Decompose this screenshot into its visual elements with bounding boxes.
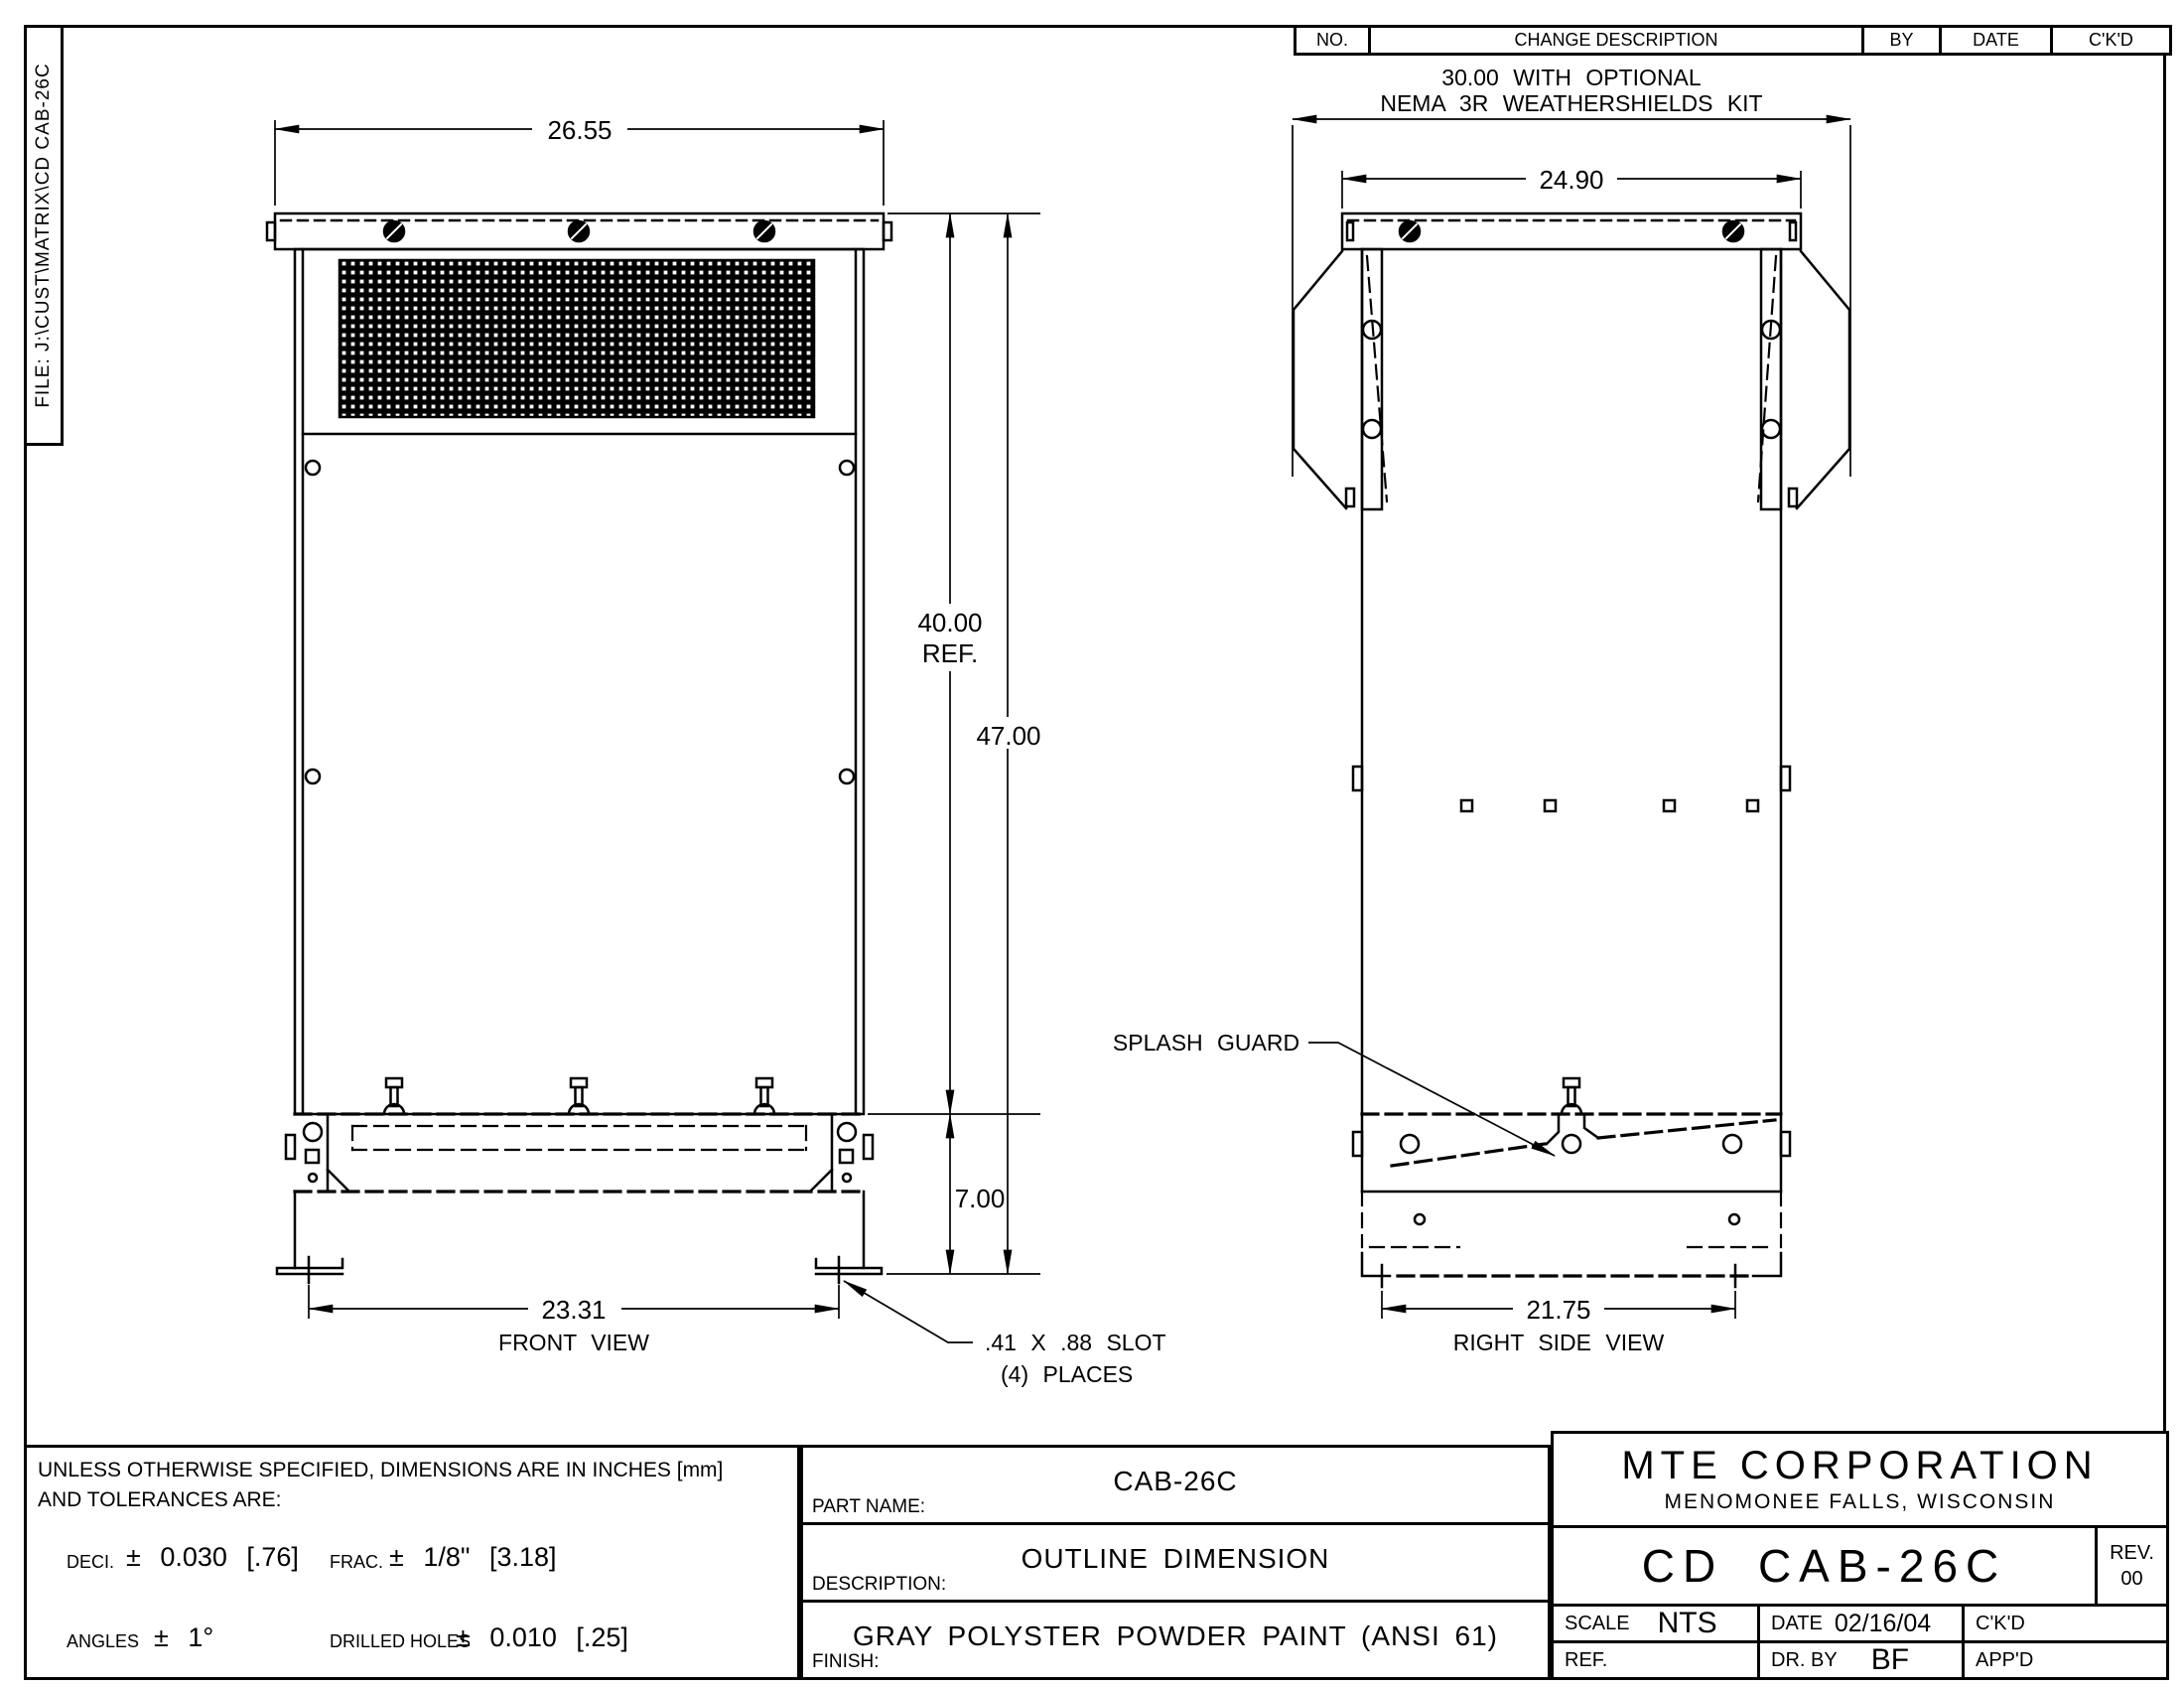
- slot-note-line1: .41 X .88 SLOT: [985, 1330, 1166, 1355]
- drawing-sheet: FILE: J:\CUST\MATRIX\CD CAB-26C NO. CHAN…: [0, 0, 2184, 1688]
- finish-value: GRAY POLYSTER POWDER PAINT (ANSI 61): [803, 1620, 1548, 1652]
- date-cell: DATE 02/16/04: [1757, 1607, 1962, 1640]
- drawing-number-row: CD CAB-26C REV. 00: [1554, 1525, 2166, 1604]
- right-side-view: [1294, 213, 1849, 1287]
- dim-side-top-width: 24.90: [1539, 165, 1603, 195]
- dim-side-base-width: 21.75: [1526, 1295, 1590, 1325]
- tolerance-note-line2: AND TOLERANCES ARE:: [38, 1485, 723, 1515]
- deci-value: ± 0.030 [.76]: [126, 1542, 299, 1573]
- scale-row: SCALE NTS DATE 02/16/04 C'K'D: [1554, 1604, 2166, 1640]
- title-block: MTE CORPORATION MENOMONEE FALLS, WISCONS…: [1551, 1431, 2169, 1680]
- ckd-label: C'K'D: [1976, 1613, 2025, 1635]
- clamp-bolt: [1562, 1078, 1581, 1114]
- side-view-label: RIGHT SIDE VIEW: [1453, 1330, 1665, 1355]
- drilled-value: ± 0.010 [.25]: [456, 1622, 628, 1653]
- splash-guard-label: SPLASH GUARD: [1113, 1030, 1299, 1055]
- dim-front-base-width: 23.31: [541, 1295, 606, 1325]
- dim-front-height-ref: 40.00: [917, 608, 982, 637]
- tolerance-note-line1: UNLESS OTHERWISE SPECIFIED, DIMENSIONS A…: [38, 1456, 723, 1485]
- front-view: [267, 213, 891, 1283]
- ref-cell: REF.: [1554, 1643, 1757, 1677]
- rev-value: 00: [2120, 1566, 2142, 1592]
- dim-front-top-width: 26.55: [547, 115, 612, 145]
- weathershield-note-line2: NEMA 3R WEATHERSHIELDS KIT: [1380, 90, 1762, 116]
- company-name: MTE CORPORATION: [1621, 1444, 2098, 1488]
- description-row: OUTLINE DIMENSION DESCRIPTION:: [803, 1522, 1548, 1600]
- weathershield-brackets: [1294, 249, 1849, 509]
- slot-note-line2: (4) PLACES: [1001, 1361, 1133, 1387]
- ref-row: REF. DR. BY BF APP'D: [1554, 1640, 2166, 1677]
- part-name-label: PART NAME:: [812, 1496, 925, 1518]
- front-feet: [277, 1192, 882, 1283]
- drby-label: DR. BY: [1771, 1649, 1838, 1672]
- dim-front-base-height: 7.00: [955, 1184, 1006, 1213]
- description-label: DESCRIPTION:: [812, 1574, 946, 1596]
- dim-front-height-ref-suffix: REF.: [922, 638, 978, 668]
- drby-cell: DR. BY BF: [1757, 1643, 1962, 1677]
- date-value: 02/16/04: [1835, 1610, 1931, 1638]
- front-view-label: FRONT VIEW: [498, 1330, 649, 1355]
- scale-cell: SCALE NTS: [1554, 1607, 1757, 1640]
- finish-label: FINISH:: [812, 1651, 880, 1673]
- description-value: OUTLINE DIMENSION: [803, 1543, 1548, 1575]
- drawing-number: CD CAB-26C: [1554, 1528, 2095, 1604]
- finish-row: GRAY POLYSTER POWDER PAINT (ANSI 61) FIN…: [803, 1600, 1548, 1677]
- side-feet: [1362, 1192, 1781, 1287]
- screw-icon: [384, 221, 774, 241]
- scale-label: SCALE: [1565, 1613, 1630, 1635]
- angles-value: ± 1°: [154, 1622, 213, 1653]
- ckd-cell: C'K'D: [1962, 1607, 2166, 1640]
- frac-value: ± 1/8" [3.18]: [389, 1542, 557, 1573]
- appd-label: APP'D: [1976, 1649, 2033, 1672]
- company-row: MTE CORPORATION MENOMONEE FALLS, WISCONS…: [1554, 1434, 2166, 1525]
- front-base-band: [286, 1078, 873, 1192]
- part-name-value: CAB-26C: [803, 1466, 1548, 1497]
- side-base-band: [1353, 1078, 1790, 1192]
- weathershield-note-line1: 30.00 WITH OPTIONAL: [1441, 65, 1702, 90]
- appd-cell: APP'D: [1962, 1643, 2166, 1677]
- dim-front-height-overall: 47.00: [976, 721, 1040, 751]
- frac-label: FRAC.: [330, 1552, 383, 1573]
- screw-icon: [1400, 221, 1743, 241]
- tolerance-block: UNLESS OTHERWISE SPECIFIED, DIMENSIONS A…: [24, 1445, 800, 1680]
- part-info-block: CAB-26C PART NAME: OUTLINE DIMENSION DES…: [800, 1445, 1551, 1680]
- date-label: DATE: [1771, 1613, 1823, 1635]
- revision-cell: REV. 00: [2095, 1528, 2166, 1604]
- side-view-dimensions: 30.00 WITH OPTIONAL NEMA 3R WEATHERSHIEL…: [1113, 65, 1850, 1355]
- drilled-label: DRILLED HOLES: [330, 1631, 471, 1652]
- ref-label: REF.: [1565, 1649, 1607, 1672]
- company-city: MENOMONEE FALLS, WISCONSIN: [1665, 1490, 2056, 1514]
- rev-label: REV.: [2110, 1540, 2154, 1566]
- scale-value: NTS: [1658, 1607, 1717, 1640]
- part-name-row: CAB-26C PART NAME:: [803, 1448, 1548, 1522]
- angles-label: ANGLES: [67, 1631, 139, 1652]
- clamp-bolt: [384, 1078, 774, 1114]
- vent-grille: [340, 260, 814, 417]
- drby-value: BF: [1871, 1643, 1909, 1677]
- deci-label: DECI.: [67, 1552, 114, 1573]
